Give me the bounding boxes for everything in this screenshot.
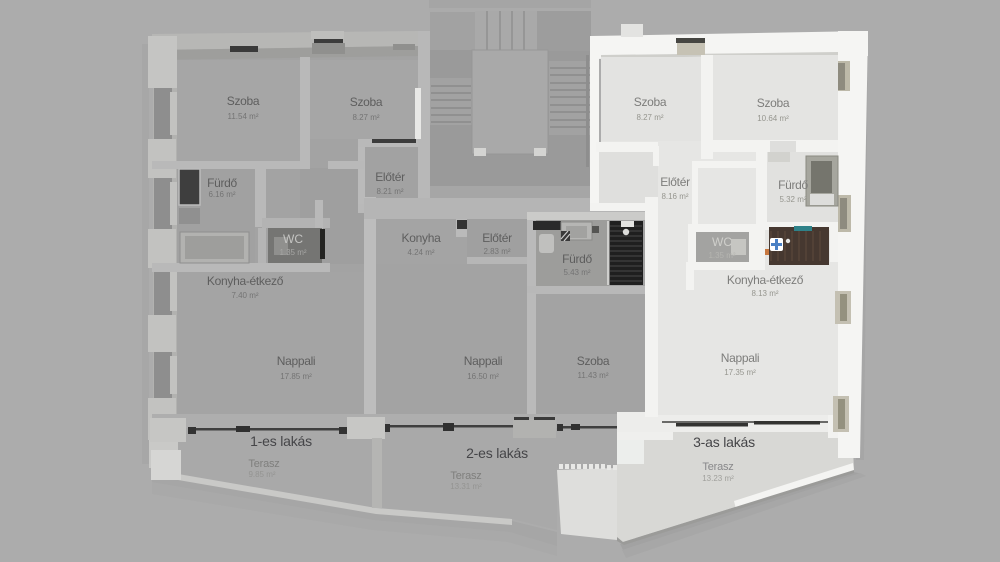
svg-text:11.43 m²: 11.43 m² [578,371,609,380]
svg-text:8.13 m²: 8.13 m² [751,289,778,298]
svg-text:Szoba: Szoba [227,94,260,108]
svg-text:WC: WC [712,235,732,249]
svg-text:8.16 m²: 8.16 m² [661,192,688,201]
svg-text:Előtér: Előtér [482,231,512,245]
svg-text:16.50 m²: 16.50 m² [467,372,499,381]
svg-text:5.32 m²: 5.32 m² [779,195,806,204]
svg-text:Fürdő: Fürdő [562,252,592,266]
svg-text:1.35 m²: 1.35 m² [279,248,306,257]
svg-text:1.35 m²: 1.35 m² [708,251,735,260]
svg-text:17.35 m²: 17.35 m² [724,368,756,377]
svg-text:8.21 m²: 8.21 m² [376,187,403,196]
svg-text:Szoba: Szoba [350,95,383,109]
svg-text:7.40 m²: 7.40 m² [231,291,258,300]
svg-text:Nappali: Nappali [464,354,503,368]
svg-text:11.54 m²: 11.54 m² [228,112,259,121]
svg-text:10.64 m²: 10.64 m² [757,114,789,123]
svg-text:Szoba: Szoba [634,95,667,109]
svg-text:8.27 m²: 8.27 m² [636,113,663,122]
svg-text:9.85 m²: 9.85 m² [248,470,275,479]
svg-text:Előtér: Előtér [660,175,690,189]
svg-text:Fürdő: Fürdő [778,178,808,192]
svg-text:6.16 m²: 6.16 m² [208,190,235,199]
svg-text:13.31 m²: 13.31 m² [450,482,482,491]
svg-text:13.23 m²: 13.23 m² [702,474,734,483]
svg-text:Előtér: Előtér [375,170,405,184]
svg-text:Konyha-étkező: Konyha-étkező [727,273,804,287]
svg-text:17.85 m²: 17.85 m² [280,372,312,381]
svg-text:Terasz: Terasz [450,470,481,482]
svg-text:Szoba: Szoba [757,96,790,110]
svg-text:Konyha-étkező: Konyha-étkező [207,274,284,288]
svg-text:Konyha: Konyha [402,231,442,245]
svg-text:5.43 m²: 5.43 m² [563,268,590,277]
svg-text:WC: WC [283,232,303,246]
svg-text:Fürdő: Fürdő [207,176,237,190]
svg-text:2-es lakás: 2-es lakás [466,445,528,461]
svg-text:1-es lakás: 1-es lakás [250,433,312,449]
svg-text:Terasz: Terasz [248,458,279,470]
svg-text:8.27 m²: 8.27 m² [352,113,379,122]
svg-text:3-as lakás: 3-as lakás [693,434,755,450]
svg-text:Szoba: Szoba [577,354,610,368]
svg-text:2.83 m²: 2.83 m² [483,247,510,256]
svg-text:4.24 m²: 4.24 m² [407,248,434,257]
svg-text:Nappali: Nappali [277,354,316,368]
svg-text:Terasz: Terasz [702,461,733,473]
svg-text:Nappali: Nappali [721,351,760,365]
